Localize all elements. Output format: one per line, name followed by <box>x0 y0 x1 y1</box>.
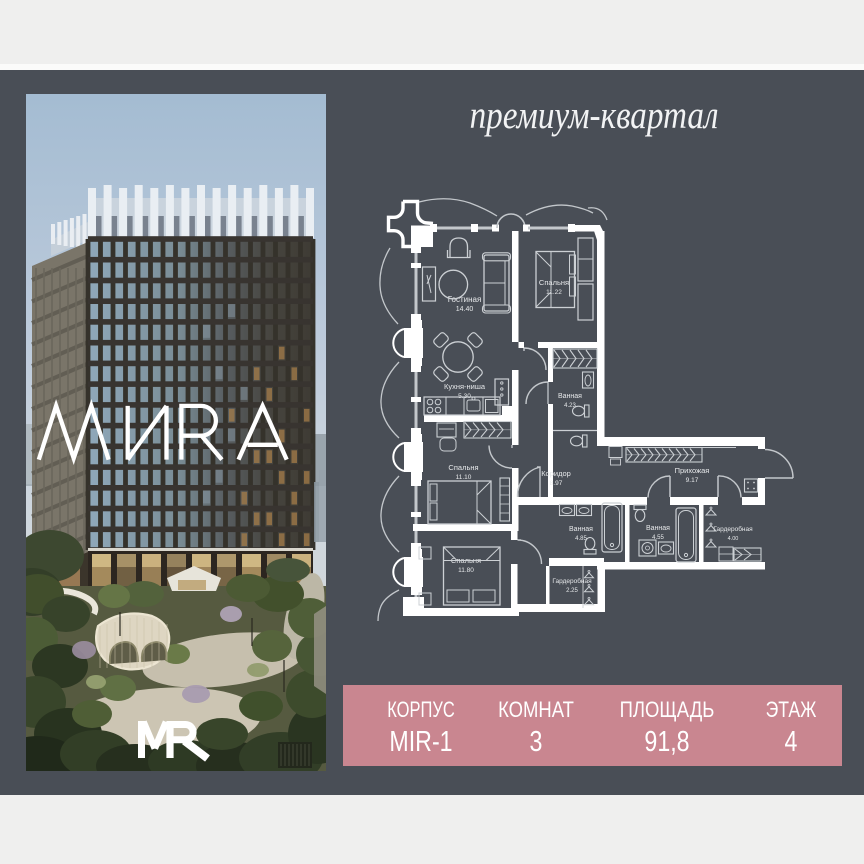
svg-text:Ванная: Ванная <box>558 393 582 400</box>
svg-text:Спальня: Спальня <box>539 278 569 287</box>
svg-text:Гардеробная: Гардеробная <box>713 525 753 533</box>
svg-text:11.80: 11.80 <box>458 567 474 574</box>
svg-text:Спальня: Спальня <box>448 463 478 472</box>
svg-text:Гостиная: Гостиная <box>448 295 482 304</box>
svg-text:Ванная: Ванная <box>646 525 670 532</box>
svg-text:9.17: 9.17 <box>686 477 699 484</box>
svg-text:11.10: 11.10 <box>456 474 472 481</box>
svg-text:Ванная: Ванная <box>569 526 593 533</box>
svg-text:14.40: 14.40 <box>456 306 474 313</box>
svg-text:Кухня-ниша: Кухня-ниша <box>444 382 486 391</box>
svg-text:Коридор: Коридор <box>541 469 571 478</box>
svg-text:8.97: 8.97 <box>550 480 563 487</box>
svg-text:4.00: 4.00 <box>728 536 739 542</box>
svg-text:2.25: 2.25 <box>566 588 578 594</box>
svg-text:Прихожая: Прихожая <box>675 466 710 475</box>
svg-text:4.23: 4.23 <box>564 403 576 409</box>
